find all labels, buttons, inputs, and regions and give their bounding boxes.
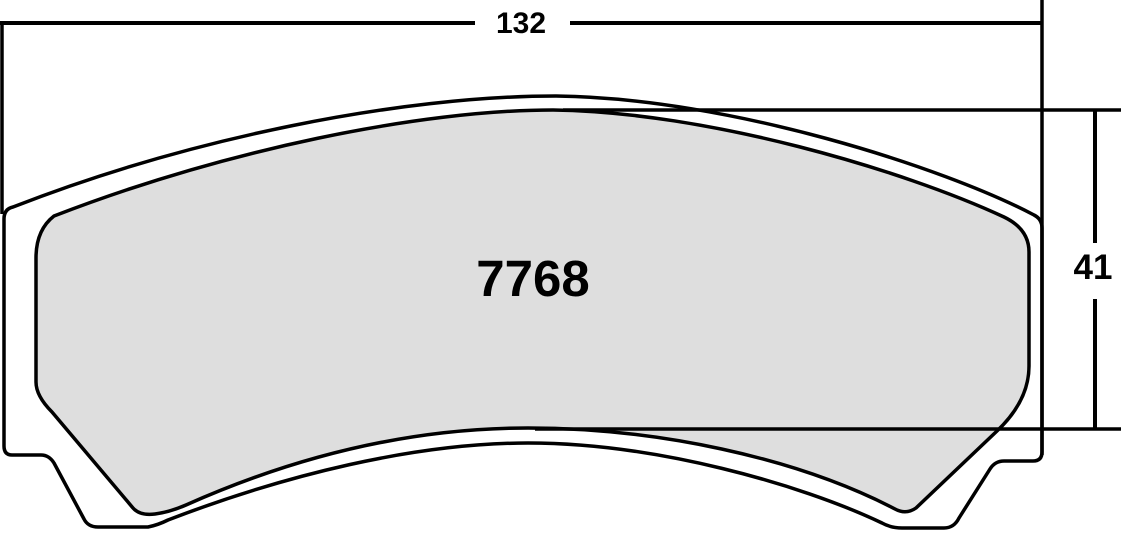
width-dimension-label: 132	[496, 7, 546, 40]
diagram-svg: 132 41 7768	[0, 0, 1121, 536]
friction-material-shape	[36, 110, 1029, 514]
brake-pad-dimension-diagram: 132 41 7768	[0, 0, 1121, 536]
part-number-label: 7768	[476, 250, 589, 307]
height-dimension-label: 41	[1074, 248, 1113, 287]
